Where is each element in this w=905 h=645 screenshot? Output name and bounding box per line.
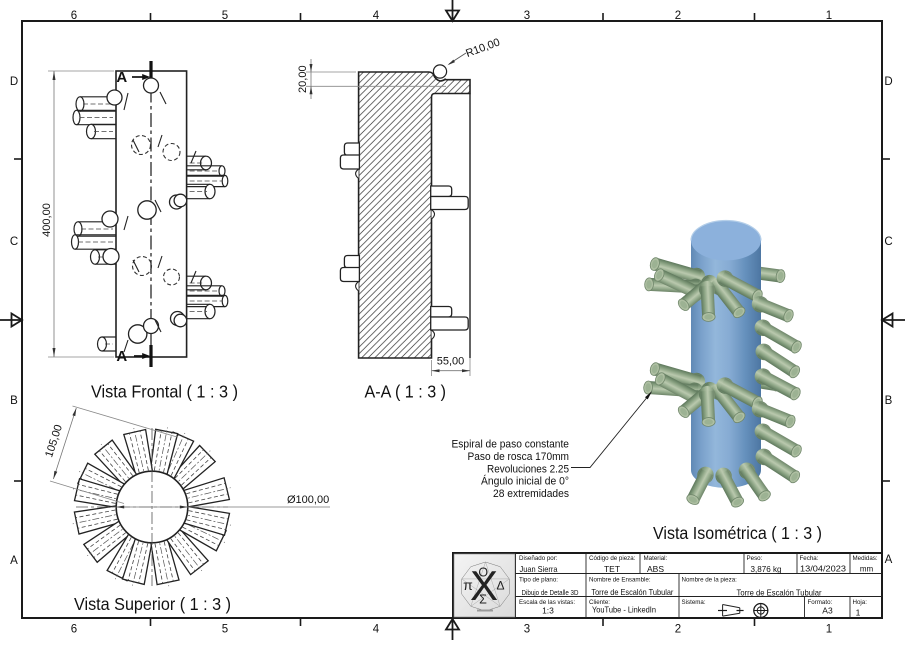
svg-text:B: B <box>10 395 18 407</box>
svg-text:Revoluciones 2.25: Revoluciones 2.25 <box>487 463 569 475</box>
svg-text:55,00: 55,00 <box>437 356 465 368</box>
svg-text:A-A ( 1 : 3 ): A-A ( 1 : 3 ) <box>365 382 447 402</box>
svg-text:Tipo de plano:: Tipo de plano: <box>519 577 558 584</box>
svg-text:1: 1 <box>826 10 832 22</box>
svg-text:O: O <box>478 566 488 580</box>
svg-text:Torre de Escalón Tubular: Torre de Escalón Tubular <box>737 588 822 598</box>
svg-text:Hoja:: Hoja: <box>853 599 868 606</box>
svg-text:3,876 kg: 3,876 kg <box>751 564 782 574</box>
svg-text:A: A <box>10 555 18 567</box>
svg-text:YouTube - LinkedIn: YouTube - LinkedIn <box>592 605 656 615</box>
svg-text:Espiral de paso constante: Espiral de paso constante <box>452 439 570 451</box>
svg-text:20,00: 20,00 <box>297 65 309 93</box>
svg-text:A: A <box>885 554 893 566</box>
svg-text:1:3: 1:3 <box>542 606 554 616</box>
svg-text:π: π <box>463 577 473 593</box>
svg-text:Sistema:: Sistema: <box>682 599 706 606</box>
svg-text:5: 5 <box>222 624 228 636</box>
svg-text:Medidas:: Medidas: <box>853 555 878 562</box>
svg-text:Nombre de la pieza:: Nombre de la pieza: <box>682 577 738 584</box>
svg-text:A: A <box>116 348 127 365</box>
svg-text:6: 6 <box>71 10 77 22</box>
svg-text:D: D <box>10 76 18 88</box>
svg-text:B: B <box>885 395 893 407</box>
svg-text:TET: TET <box>604 564 620 574</box>
svg-text:A3: A3 <box>822 606 833 616</box>
svg-text:400,00: 400,00 <box>41 203 53 237</box>
svg-text:Dibujo de Detalle 3D: Dibujo de Detalle 3D <box>522 590 579 597</box>
svg-text:13/04/2023: 13/04/2023 <box>800 564 846 574</box>
svg-text:Nombre de Ensamble:: Nombre de Ensamble: <box>589 577 651 584</box>
svg-text:Δ: Δ <box>496 579 504 593</box>
svg-text:1: 1 <box>856 608 861 618</box>
svg-text:Fecha:: Fecha: <box>800 555 819 562</box>
svg-text:Material:: Material: <box>644 555 668 562</box>
svg-text:28 extremidades: 28 extremidades <box>493 488 569 500</box>
svg-text:6: 6 <box>71 624 77 636</box>
svg-text:1: 1 <box>826 624 832 636</box>
svg-text:Ø100,00: Ø100,00 <box>287 494 329 506</box>
svg-text:Diseñado por:: Diseñado por: <box>519 555 558 562</box>
svg-text:3: 3 <box>524 10 530 22</box>
svg-text:Código de pieza:: Código de pieza: <box>589 555 636 562</box>
svg-text:4: 4 <box>373 10 380 22</box>
svg-text:2: 2 <box>675 10 681 22</box>
svg-text:Paso de rosca 170mm: Paso de rosca 170mm <box>468 451 570 463</box>
svg-text:5: 5 <box>222 10 228 22</box>
svg-text:D: D <box>884 76 892 88</box>
svg-text:Ángulo inicial de 0°: Ángulo inicial de 0° <box>481 475 569 488</box>
svg-text:mm: mm <box>860 565 874 574</box>
svg-text:ABS: ABS <box>647 564 664 574</box>
svg-text:Juan Sierra: Juan Sierra <box>520 564 558 574</box>
svg-text:2: 2 <box>675 624 681 636</box>
svg-text:3: 3 <box>524 624 530 636</box>
svg-text:Σ: Σ <box>479 593 487 607</box>
svg-text:Torre de Escalón Tubular: Torre de Escalón Tubular <box>591 587 673 597</box>
svg-text:C: C <box>10 236 18 248</box>
svg-text:A: A <box>116 69 127 86</box>
svg-text:Vista Isométrica ( 1 : 3 ): Vista Isométrica ( 1 : 3 ) <box>653 523 822 543</box>
svg-text:Vista Frontal ( 1 : 3 ): Vista Frontal ( 1 : 3 ) <box>91 382 238 402</box>
svg-text:Vista Superior ( 1 : 3 ): Vista Superior ( 1 : 3 ) <box>74 594 231 614</box>
svg-text:C: C <box>884 236 892 248</box>
svg-text:Peso:: Peso: <box>747 555 763 562</box>
svg-text:4: 4 <box>373 624 380 636</box>
